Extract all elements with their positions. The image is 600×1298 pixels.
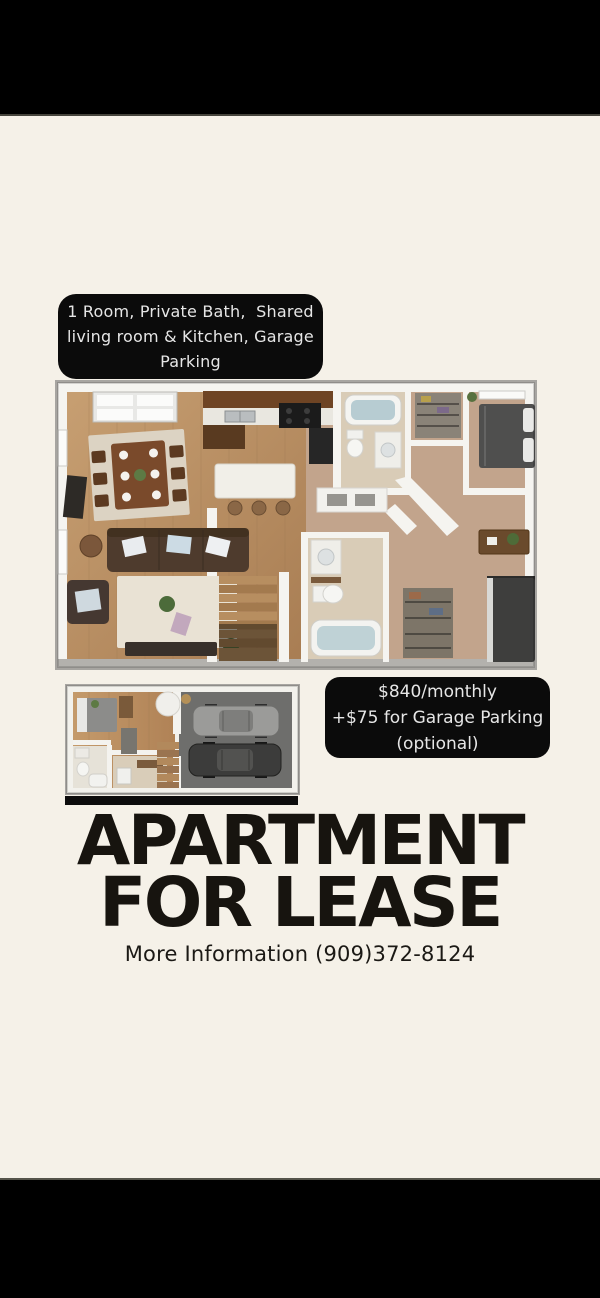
top-letterbox-bar [0, 0, 600, 114]
car-1 [193, 704, 279, 738]
hallway-console-unit [317, 488, 387, 512]
price-line-1: $840/monthly [325, 679, 550, 705]
price-line-2: +$75 for Garage Parking [325, 705, 550, 731]
small-dog [181, 694, 191, 704]
price-line-3: (optional) [325, 731, 550, 757]
features-text-box: 1 Room, Private Bath, Shared living room… [58, 294, 323, 379]
left-window-2 [58, 530, 67, 574]
features-line-3: Parking [58, 349, 323, 374]
headline: APARTMENT FOR LEASE [0, 810, 600, 934]
price-text-box: $840/monthly +$75 for Garage Parking (op… [325, 677, 550, 758]
flyer-screenshot: 1 Room, Private Bath, Shared living room… [0, 0, 600, 1298]
dining-set [88, 429, 190, 521]
headline-line-2: FOR LEASE [0, 872, 600, 934]
hall-console [479, 530, 529, 554]
features-line-1: 1 Room, Private Bath, Shared [58, 299, 323, 324]
car-2 [189, 742, 281, 778]
garage-floorplan-image [65, 684, 300, 795]
bottom-letterbox-bar [0, 1180, 600, 1298]
features-line-2: living room & Kitchen, Garage [58, 324, 323, 349]
lower-bathroom [73, 746, 107, 788]
left-window [58, 430, 67, 466]
main-floorplan-image [55, 380, 537, 670]
flyer-canvas: 1 Room, Private Bath, Shared living room… [0, 114, 600, 1180]
contact-info: More Information (909)372-8124 [0, 942, 600, 966]
skylight-window [93, 392, 177, 422]
stairs [219, 576, 277, 661]
closet-shelves [415, 393, 461, 438]
